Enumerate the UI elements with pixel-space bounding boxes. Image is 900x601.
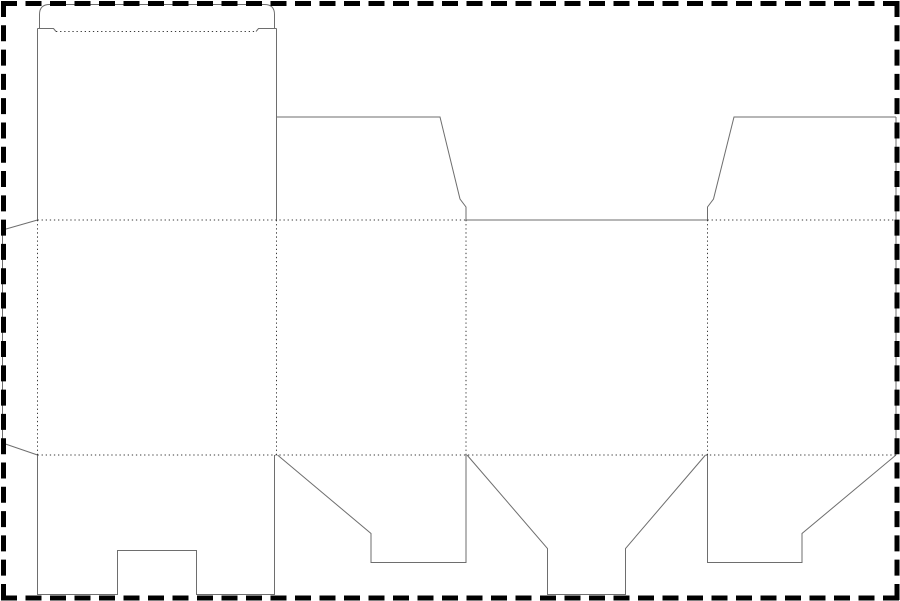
dieline-page: [0, 0, 900, 601]
dieline-drawing: [0, 0, 900, 601]
page-background: [0, 0, 900, 601]
